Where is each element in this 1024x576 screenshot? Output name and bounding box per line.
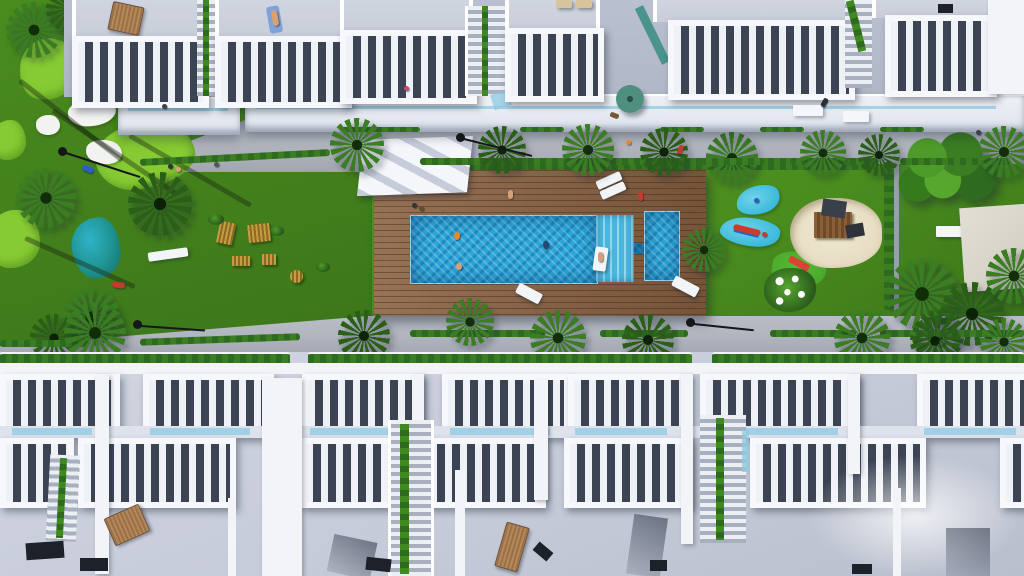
- roof-lounger: [576, 0, 592, 8]
- terrace-planter: [760, 127, 804, 132]
- person-on-deck: [419, 206, 424, 211]
- chimney: [25, 541, 64, 561]
- pergola-terrace: [564, 438, 693, 508]
- pergola-terrace: [300, 438, 400, 508]
- palm-tree: [800, 130, 846, 176]
- palm-tree: [682, 228, 726, 272]
- palm-tree: [562, 124, 614, 176]
- pool-channel: [634, 244, 644, 254]
- palm-tree: [478, 126, 526, 174]
- staircase-planter: [716, 418, 724, 540]
- roof-ridge: [893, 488, 901, 576]
- person-walking-deck: [638, 192, 643, 201]
- aerial-render-scene: [0, 0, 1024, 576]
- roof-sun-glare: [800, 450, 1024, 576]
- person-walking: [176, 167, 181, 172]
- stair-planter: [203, 0, 209, 96]
- roof-ridge: [455, 470, 465, 576]
- palm-tree: [330, 118, 384, 172]
- promenade-bench: [793, 105, 823, 116]
- swimmer: [454, 232, 460, 240]
- building-end-wall: [988, 0, 1024, 94]
- pergola-terrace: [72, 36, 209, 108]
- palm-tree: [16, 168, 76, 228]
- garden-bush: [316, 262, 330, 272]
- gym-equipment: [262, 254, 276, 265]
- chimney: [365, 557, 391, 573]
- party-wall: [262, 378, 302, 576]
- main-pool: [410, 215, 598, 284]
- staircase-planter: [400, 424, 409, 574]
- pergola-terrace: [505, 28, 604, 102]
- roof-ridge: [228, 498, 236, 576]
- roof-lounger: [107, 1, 144, 36]
- person-on-float: [598, 252, 603, 262]
- roof-deck: [653, 0, 853, 22]
- roof-lounger: [556, 0, 572, 8]
- palm-tree: [978, 126, 1024, 178]
- palm-tree: [446, 298, 494, 346]
- kids-pool: [644, 211, 680, 281]
- person-on-terrace: [162, 104, 167, 109]
- walkway-hedge: [700, 158, 764, 165]
- palm-tree: [858, 134, 900, 176]
- pergola-terrace: [668, 20, 855, 100]
- gym-equipment: [247, 223, 271, 243]
- garden-bush: [208, 214, 224, 225]
- person-walking: [168, 164, 173, 169]
- swimmer: [456, 263, 462, 270]
- person-walking-deck: [508, 190, 513, 199]
- glass-balustrade: [128, 108, 228, 111]
- terrace-planter: [520, 127, 564, 132]
- roof-shadow: [946, 528, 990, 576]
- glass-balustrade: [924, 428, 1016, 435]
- glass-balustrade: [12, 428, 92, 435]
- terrace-planter: [880, 127, 924, 132]
- person-walking: [214, 162, 219, 167]
- play-structure-canopy: [821, 198, 847, 218]
- party-wall: [534, 380, 548, 500]
- garden-bush: [270, 226, 284, 236]
- parapet-band: [0, 363, 1024, 374]
- party-wall: [95, 374, 109, 574]
- gym-equipment: [290, 270, 303, 283]
- child-figure: [754, 198, 759, 203]
- person-on-deck: [412, 203, 417, 208]
- stair-glass: [742, 430, 749, 472]
- person-walking: [626, 140, 631, 145]
- pergola-terrace: [885, 15, 997, 97]
- stair-planter: [482, 6, 488, 96]
- pergola-terrace: [340, 30, 477, 104]
- person-on-terrace: [404, 86, 409, 91]
- sand-bunker: [36, 115, 60, 135]
- pergola-terrace: [215, 36, 352, 108]
- promenade-bench: [843, 111, 869, 122]
- roof-deck: [215, 0, 348, 38]
- chimney: [852, 564, 872, 574]
- person-walking: [976, 130, 981, 135]
- chimney: [80, 558, 108, 571]
- party-wall: [681, 374, 693, 544]
- terrace-parasol: [616, 85, 644, 113]
- chimney: [650, 560, 667, 571]
- palm-tree: [128, 172, 192, 236]
- glass-balustrade: [150, 428, 250, 435]
- pergola-terrace: [424, 438, 546, 508]
- chimney: [938, 4, 953, 13]
- swimmer: [543, 241, 549, 249]
- staircase: [388, 420, 434, 576]
- child-figure: [762, 232, 767, 237]
- roof-deck: [340, 0, 473, 32]
- walkway-hedge: [420, 158, 480, 165]
- glass-balustrade: [575, 428, 667, 435]
- gym-equipment: [232, 256, 250, 266]
